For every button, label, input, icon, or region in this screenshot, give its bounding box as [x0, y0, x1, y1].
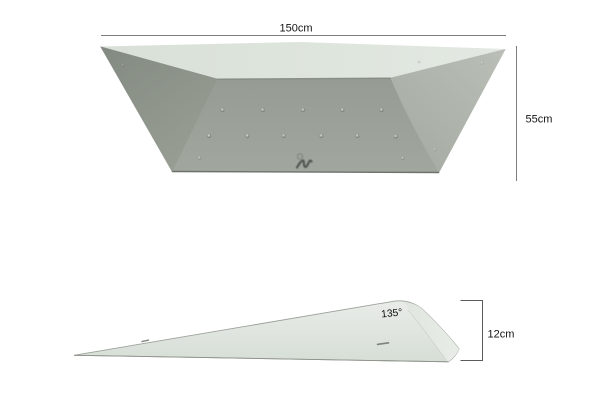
- svg-text:55cm: 55cm: [526, 114, 553, 126]
- svg-text:12cm: 12cm: [488, 328, 515, 340]
- svg-text:135°: 135°: [381, 307, 403, 320]
- svg-text:150cm: 150cm: [279, 23, 312, 35]
